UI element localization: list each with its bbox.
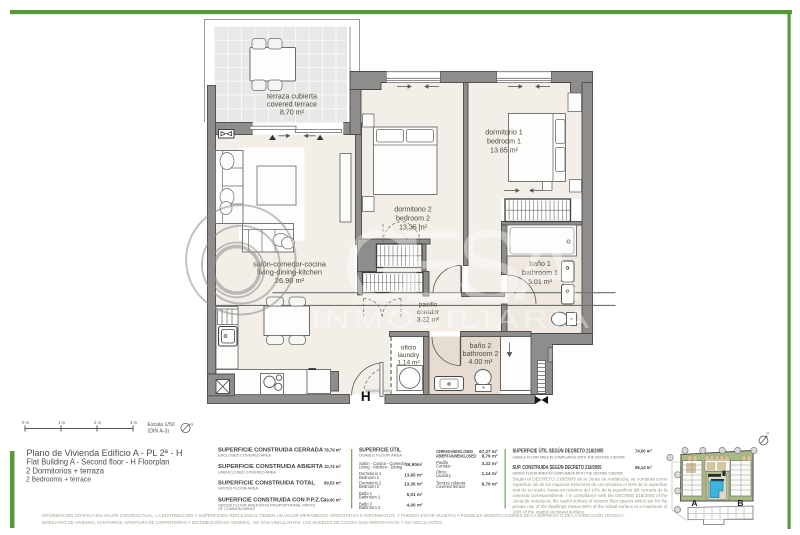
svg-text:GROSS FLOOR AREA IN COMPLIANCE: GROSS FLOOR AREA IN COMPLIANCE WITH THE …: [513, 471, 623, 476]
svg-text:Laundry: Laundry: [436, 473, 452, 478]
svg-text:13,35 m²: 13,35 m²: [404, 482, 423, 487]
svg-text:2 Bedrooms + terrace: 2 Bedrooms + terrace: [26, 477, 91, 484]
svg-text:(DIN A-3): (DIN A-3): [148, 429, 170, 435]
svg-text:private use of the dwellings m: private use of the dwellings means 50% o…: [513, 504, 669, 509]
svg-text:10,74 m²: 10,74 m²: [324, 464, 341, 470]
svg-text:8,70 m²: 8,70 m²: [482, 482, 498, 487]
svg-text:INMOBILIARIA: INMOBILIARIA: [311, 306, 593, 334]
svg-text:Living - Kitchen - Dining: Living - Kitchen - Dining: [359, 464, 403, 469]
svg-text:Corridor: Corridor: [436, 463, 451, 468]
svg-text:4.00 m²: 4.00 m²: [468, 358, 493, 366]
svg-text:INFORMACIÓN GRÁFICA SIN VALOR: INFORMACIÓN GRÁFICA SIN VALOR CONTRACTUA…: [42, 512, 625, 518]
svg-text:Bathroom 2: Bathroom 2: [359, 505, 381, 510]
svg-text:99,00 m²: 99,00 m²: [324, 497, 341, 503]
svg-text:superficie útil de los espacio: superficie útil de los espacios exterior…: [513, 482, 668, 487]
svg-text:13,65 m²: 13,65 m²: [404, 472, 423, 477]
svg-text:1,14 m²: 1,14 m²: [482, 471, 498, 476]
svg-text:8.70 m²: 8.70 m²: [280, 108, 305, 117]
svg-text:bathroom 2: bathroom 2: [463, 350, 499, 358]
svg-text:GROSS FLOOR AREA: GROSS FLOOR AREA: [218, 486, 258, 491]
svg-text:A: A: [691, 498, 697, 508]
svg-text:1 m: 1 m: [58, 420, 65, 425]
svg-text:ENCLOSED COVERED AREA: ENCLOSED COVERED AREA: [218, 453, 271, 458]
svg-text:89,53 m²: 89,53 m²: [324, 480, 341, 486]
svg-text:UNENCLOSED COVERED AREA: UNENCLOSED COVERED AREA: [218, 469, 276, 474]
svg-text:96,14 m²: 96,14 m²: [635, 465, 652, 471]
svg-text:USABLE FLOOR AREA IN COMPLIANC: USABLE FLOOR AREA IN COMPLIANCE WITH THE…: [513, 455, 625, 460]
svg-text:Bedroom 1: Bedroom 1: [359, 475, 380, 480]
svg-text:baño 2: baño 2: [470, 342, 492, 350]
svg-text:vivienda correspondiente. /: vivienda correspondiente. / In complianc…: [513, 493, 668, 498]
svg-text:Plano de Vivienda Edificio A -: Plano de Vivienda Edificio A - PL 2ª - H: [27, 448, 183, 458]
svg-text:0 m: 0 m: [22, 420, 29, 425]
svg-text:3 m: 3 m: [130, 420, 137, 425]
svg-text:8,79 m²: 8,79 m²: [482, 453, 498, 458]
svg-text:Según el DECRETO 218/2005: Según el DECRETO 218/2005 de la Junta de…: [513, 477, 668, 482]
svg-text:oficio: oficio: [401, 345, 417, 352]
svg-text:Escala 1/50: Escala 1/50: [148, 422, 175, 428]
svg-text:ABIERTA/UNENCLOSED: ABIERTA/UNENCLOSED: [436, 453, 477, 458]
svg-text:1,14 m²: 1,14 m²: [397, 360, 420, 367]
svg-text:real de su suelo, hasta u: real de su suelo, hasta un máximo del 10…: [513, 488, 668, 493]
svg-text:74,00 m²: 74,00 m²: [635, 449, 652, 455]
svg-text:Junta de Andalucía, the useful: Junta de Andalucía, the useful surface o…: [513, 499, 668, 504]
svg-text:4,00 m²: 4,00 m²: [407, 503, 423, 508]
svg-text:MOBILIARIO DE VIVIENDA, SANITA: MOBILIARIO DE VIVIENDA, SANITARIOS, APER…: [42, 519, 443, 525]
svg-text:bedroom 1: bedroom 1: [487, 138, 521, 146]
svg-text:3,22 m²: 3,22 m²: [482, 461, 498, 466]
svg-text:H: H: [361, 389, 371, 404]
svg-text:Bedroom 2: Bedroom 2: [359, 484, 380, 489]
svg-text:Bathroom 1: Bathroom 1: [359, 495, 381, 500]
svg-text:laundry: laundry: [398, 352, 420, 359]
svg-text:78,79 m²: 78,79 m²: [324, 448, 341, 454]
svg-text:Flat Building A - Second floor: Flat Building A - Second floor - H Floor…: [27, 458, 170, 467]
svg-text:OF COMMON AREAS: OF COMMON AREAS: [218, 506, 255, 511]
svg-text:2 m: 2 m: [94, 420, 101, 425]
svg-text:13.65 m²: 13.65 m²: [490, 147, 519, 155]
svg-text:Covered terrace: Covered terrace: [436, 484, 466, 489]
svg-text:USABLE FLOOR AREA: USABLE FLOOR AREA: [359, 453, 402, 458]
svg-text:5,01 m²: 5,01 m²: [407, 492, 423, 497]
svg-text:26,90m²: 26,90m²: [405, 462, 423, 467]
svg-text:dormitorio 1: dormitorio 1: [485, 129, 523, 137]
svg-text:2 Dormitorios + terraza: 2 Dormitorios + terraza: [26, 467, 105, 476]
